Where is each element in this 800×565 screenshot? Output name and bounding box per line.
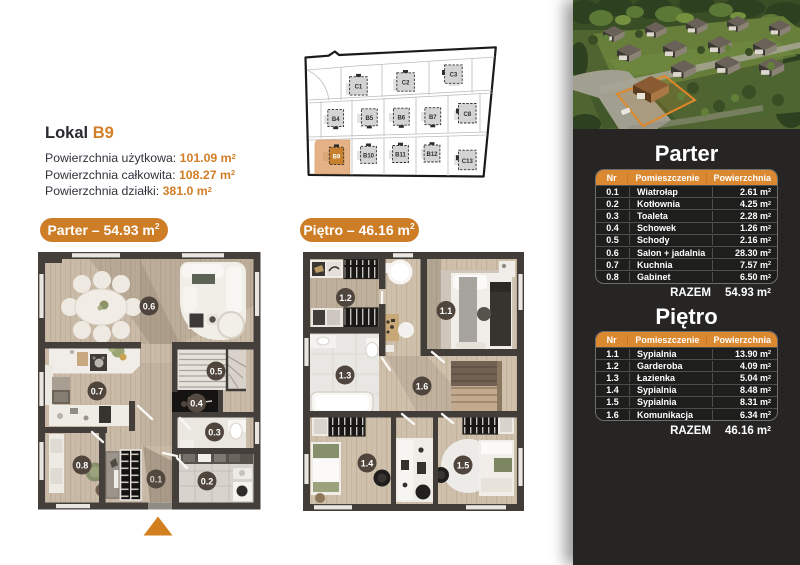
svg-text:0.7: 0.7 bbox=[91, 386, 104, 396]
svg-text:B4: B4 bbox=[332, 117, 340, 123]
svg-text:C1: C1 bbox=[355, 85, 363, 91]
svg-text:C3: C3 bbox=[450, 73, 458, 79]
svg-text:B5: B5 bbox=[365, 116, 373, 122]
svg-text:0.6: 0.6 bbox=[143, 301, 156, 311]
svg-text:1.6: 1.6 bbox=[416, 381, 429, 391]
svg-text:1.4: 1.4 bbox=[361, 458, 374, 468]
svg-text:0.3: 0.3 bbox=[208, 427, 221, 437]
svg-text:1.5: 1.5 bbox=[457, 460, 470, 470]
svg-text:0.4: 0.4 bbox=[190, 398, 203, 408]
svg-text:B11: B11 bbox=[395, 153, 406, 159]
svg-text:0.8: 0.8 bbox=[76, 460, 89, 470]
svg-text:0.2: 0.2 bbox=[201, 476, 214, 486]
svg-text:1.2: 1.2 bbox=[339, 293, 352, 303]
svg-text:C2: C2 bbox=[402, 81, 410, 87]
svg-text:B12: B12 bbox=[426, 152, 438, 158]
svg-text:0.5: 0.5 bbox=[210, 366, 223, 376]
svg-text:B6: B6 bbox=[397, 115, 405, 121]
svg-text:B7: B7 bbox=[429, 115, 437, 121]
svg-text:1.1: 1.1 bbox=[440, 306, 453, 316]
svg-text:C8: C8 bbox=[463, 112, 471, 118]
svg-text:C13: C13 bbox=[462, 159, 474, 165]
svg-text:1.3: 1.3 bbox=[339, 370, 352, 380]
svg-text:B9: B9 bbox=[333, 155, 341, 161]
svg-text:B10: B10 bbox=[363, 154, 375, 160]
